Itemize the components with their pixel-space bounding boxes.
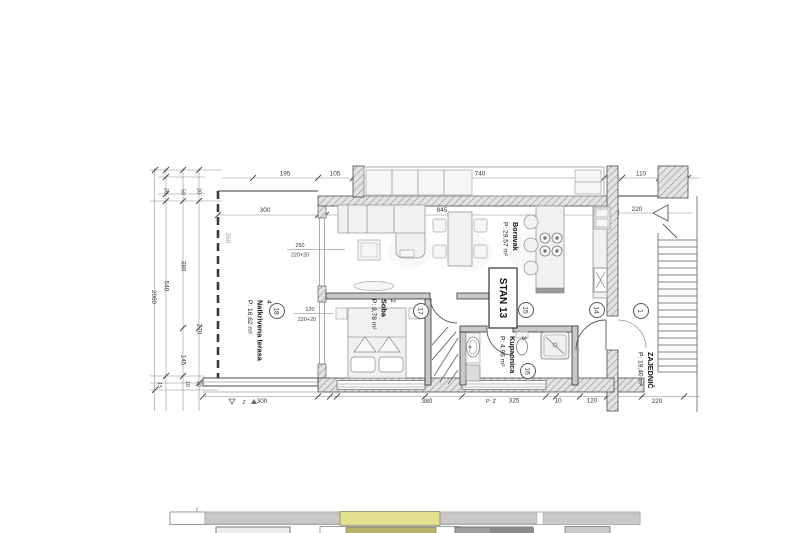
dim-bottom-120: 120 — [587, 398, 598, 405]
shower — [541, 332, 569, 359]
room-label-terasa: 4 Natkrivena terasa P: 16,62 m² — [246, 300, 272, 362]
washing-machine — [466, 365, 480, 381]
ottoman — [400, 250, 414, 257]
marker-14: 14 — [590, 303, 605, 318]
terasa-area: P: 16,62 m² — [246, 300, 253, 335]
kitchen — [524, 206, 610, 298]
dim-top-110: 110 — [636, 171, 647, 178]
unit-label-box: STAN 13 — [489, 268, 517, 328]
marker-14-label: 14 — [593, 306, 600, 314]
soba-area: P: 9,78 m² — [370, 299, 377, 330]
marker-1-label: 1 — [637, 309, 644, 313]
dim-left-20c: 20 — [196, 381, 202, 387]
fridge — [594, 207, 610, 229]
dim-bottom-325: 325 — [509, 398, 520, 405]
dim-top-105: 105 — [330, 171, 341, 178]
stair-direction-arrow — [653, 205, 677, 238]
room-label-zajednicki: ZAJEDNIČ P: 19,40 m² — [637, 352, 656, 389]
bottom-wall — [318, 378, 644, 392]
dim-left-2060: 2060 — [150, 290, 157, 305]
kitchen-sink — [594, 268, 607, 292]
marker-18-label: 18 — [273, 307, 280, 315]
dim-left-145: 145 — [180, 355, 187, 366]
strip-gray-2 — [440, 513, 537, 524]
strip-gray-1 — [205, 513, 340, 524]
fragment-pz: P: Ž — [486, 397, 497, 405]
strip-left-box — [170, 512, 205, 525]
bedroom-furniture — [336, 308, 420, 378]
dim-top-195: 195 — [280, 171, 291, 178]
dim-left-20b: 20 — [196, 188, 202, 194]
marker-17: 17 — [414, 304, 429, 319]
strip-row2-box-3 — [565, 527, 610, 533]
dim-stair-220: 220 — [632, 206, 643, 213]
marker-17-label: 17 — [417, 307, 424, 315]
cutoff-fragments: Z P: Ž — [229, 397, 497, 406]
strip-row2-box-1 — [216, 527, 290, 533]
nightstand-left — [336, 308, 347, 319]
bar-stools — [524, 215, 538, 275]
unit-label: STAN 13 — [497, 278, 508, 319]
annotation-250: 250 — [296, 243, 305, 249]
dim-top-740: 740 — [475, 171, 486, 178]
marker-16-label: 16 — [524, 367, 531, 375]
zajednicki-name: ZAJEDNIČ — [646, 352, 655, 389]
soba-name: Soba — [380, 299, 389, 318]
boravak-name: Boravak — [511, 222, 520, 252]
dim-bottom-220: 220 — [652, 398, 663, 405]
stair-side-door-arc — [618, 320, 646, 348]
stairwell — [658, 196, 697, 412]
dim-left-10: 10 — [184, 381, 190, 387]
kupaonica-area: P: 4,96 m² — [499, 336, 506, 367]
dim-left-380: 380 — [180, 261, 187, 272]
wall-shelf — [354, 282, 394, 291]
marker-18: 18 — [270, 304, 285, 319]
strip-row2-darker — [490, 528, 534, 533]
coffee-table — [358, 240, 380, 260]
terasa-name: Natkrivena terasa — [256, 300, 265, 362]
dim-left-20a: 20 — [163, 188, 169, 194]
strip-highlight-unit — [340, 512, 440, 526]
floor-plan-drawing: 195 105 740 110 30 300 845 220 20 2060 5… — [0, 0, 800, 533]
bedroom-hall-door-arc — [430, 296, 457, 323]
dim-left-270: 270 — [196, 324, 203, 335]
soba-number: 2 — [389, 299, 396, 303]
dim-left-50: 50 — [180, 189, 186, 195]
dim-living-845: 845 — [437, 207, 448, 214]
annotation-220-20-a: 220+20 — [291, 253, 309, 259]
dim-bottom-380: 380 — [422, 398, 433, 405]
floor-plan-page: 195 105 740 110 30 300 845 220 20 2060 5… — [0, 0, 800, 533]
dim-left-540: 540 — [163, 281, 170, 292]
annotation-220-20-b: 220+20 — [298, 317, 316, 323]
dim-bottom-300: 300 — [257, 398, 268, 405]
marker-15: 15 — [519, 303, 534, 318]
strip-row2-olive — [346, 528, 436, 533]
terasa-number: 4 — [265, 300, 272, 304]
washbasin — [467, 337, 480, 357]
living-room-furniture — [338, 205, 487, 291]
boravak-area: P: 29,57 m² — [502, 222, 509, 257]
kupaonica-number: 3 — [520, 336, 527, 340]
marker-16: 16 — [521, 364, 536, 379]
dim-terrace-300: 300 — [260, 207, 271, 214]
zajednicki-area: P: 19,40 m² — [637, 352, 644, 387]
dim-bottom-10: 10 — [554, 398, 562, 405]
dim-left-15: 15 — [156, 382, 162, 388]
marker-1: 1 — [634, 304, 649, 319]
annotation-120: 120 — [306, 307, 315, 313]
site-key-strip — [170, 508, 640, 533]
dim-left-260: 260 — [224, 233, 231, 244]
wardrobe-hatch — [432, 327, 458, 384]
marker-15-label: 15 — [522, 306, 529, 314]
terrace-window-wall — [318, 206, 326, 378]
position-markers: 18 17 15 16 14 1 — [270, 303, 649, 379]
strip-gray-3 — [543, 513, 640, 525]
kupaonica-name: Kupaonica — [508, 336, 517, 374]
entry-door-arc — [576, 320, 606, 350]
fragment-z: Z — [242, 400, 246, 406]
terrace-parapet — [203, 378, 318, 392]
